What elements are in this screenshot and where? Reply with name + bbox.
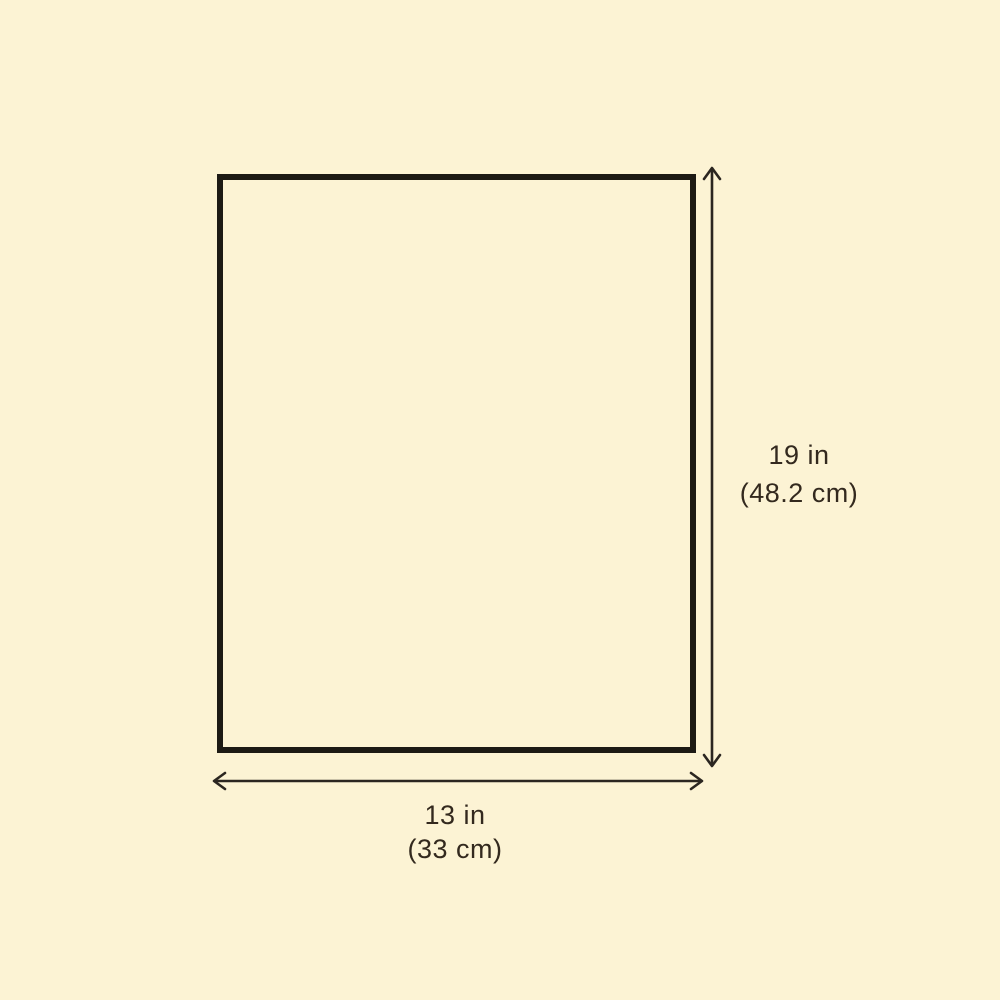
height-value-inches: 19 in bbox=[714, 436, 884, 474]
width-dimension-arrow-icon bbox=[211, 770, 705, 792]
product-outline-rectangle bbox=[217, 174, 696, 753]
width-value-inches: 13 in bbox=[355, 798, 555, 832]
width-dimension-label: 13 in (33 cm) bbox=[355, 798, 555, 866]
width-value-cm: (33 cm) bbox=[355, 832, 555, 866]
height-dimension-label: 19 in (48.2 cm) bbox=[714, 436, 884, 512]
height-value-cm: (48.2 cm) bbox=[714, 474, 884, 512]
diagram-canvas: 19 in (48.2 cm) 13 in (33 cm) bbox=[0, 0, 1000, 1000]
